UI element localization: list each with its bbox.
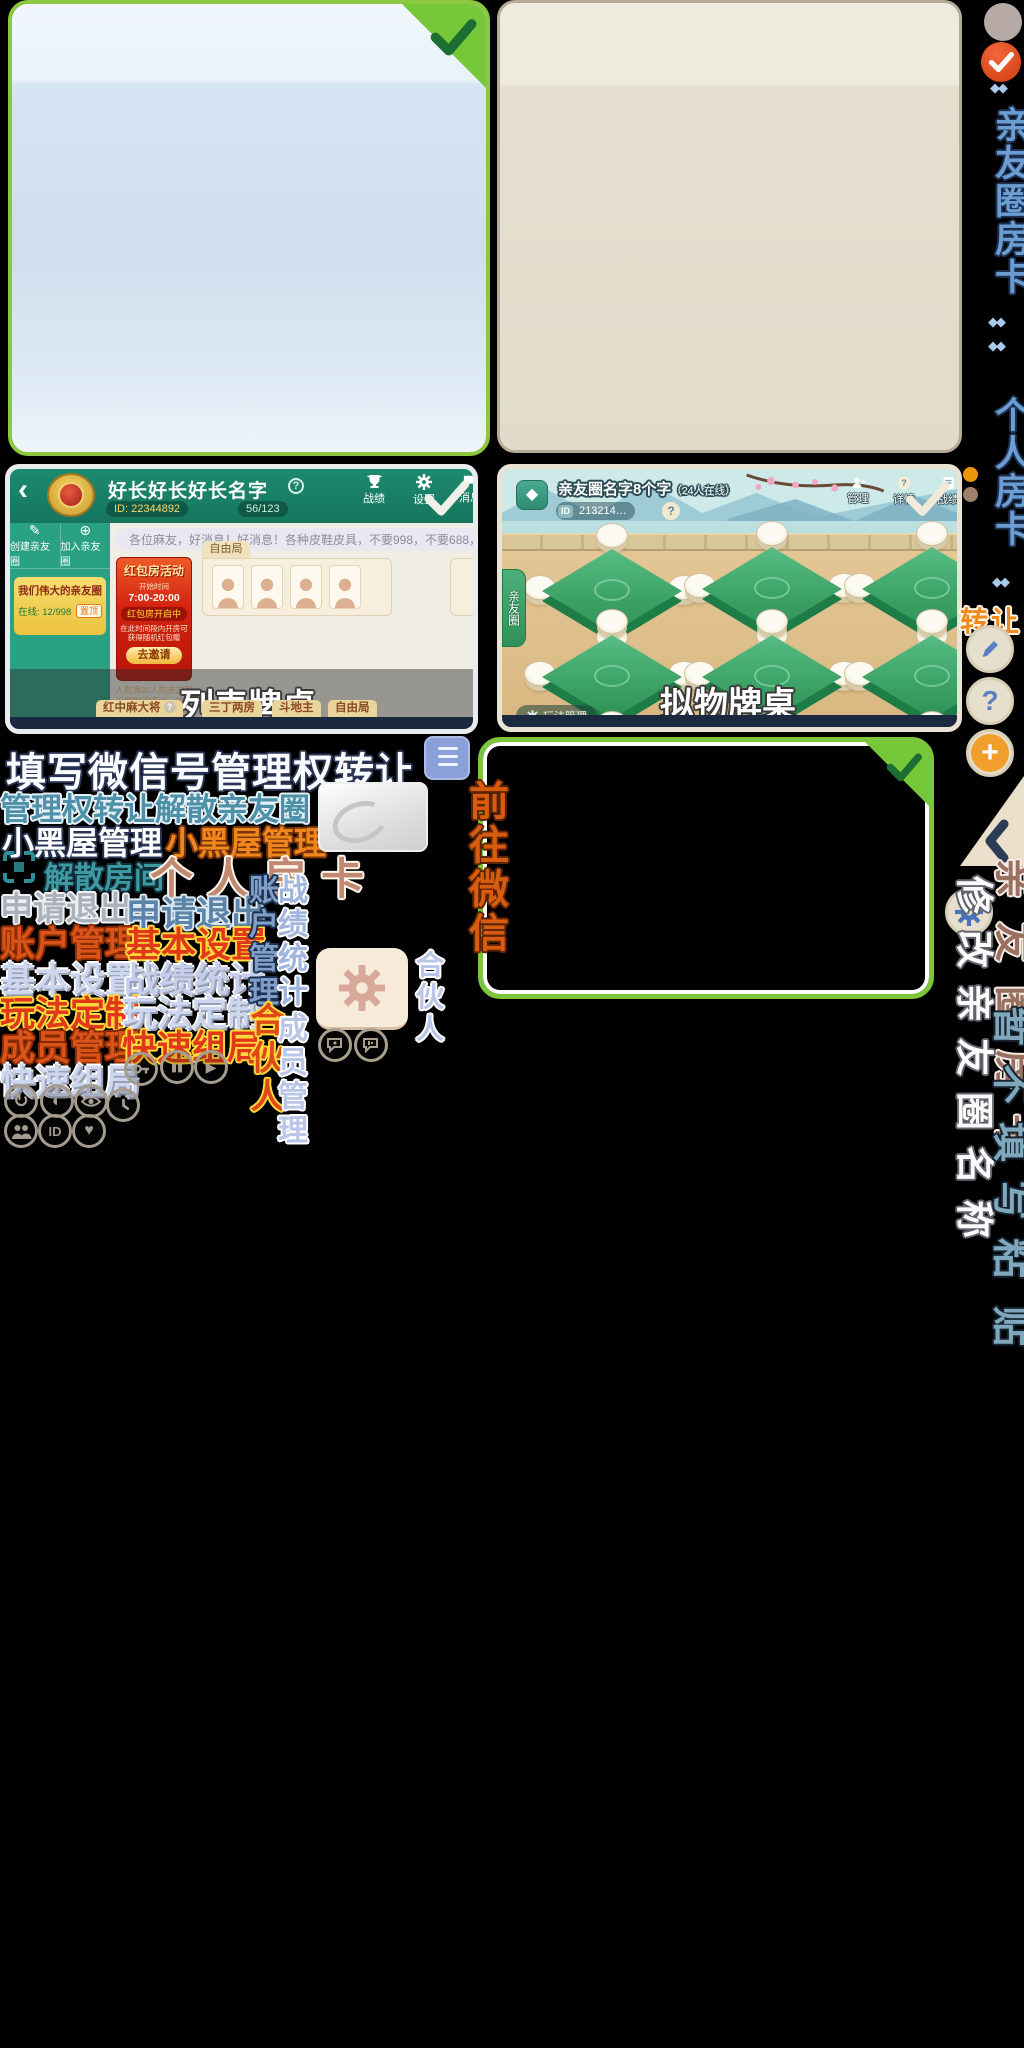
rail-label-paste-tail: 贴 <box>986 1306 1024 1346</box>
circle-emblem-icon <box>46 473 96 517</box>
tab-help-icon: ? <box>164 701 176 713</box>
gamemode-tab-1[interactable]: 红中麻大将? <box>96 700 183 717</box>
pause-icon: ▮▮ <box>160 1050 194 1084</box>
play-icon: ▶ <box>194 1050 228 1084</box>
selected-check-icon <box>422 477 470 519</box>
diamond-marker-icon: ◆◆ <box>988 314 1004 330</box>
corner-fold-collapse[interactable] <box>960 776 1024 866</box>
stats-button[interactable]: 战绩 <box>352 474 396 506</box>
avatar-placeholder-circle <box>984 3 1022 41</box>
my-circle-card[interactable]: 我们伟大的亲友圈 在线: 12/998 置顶 <box>14 577 106 635</box>
create-circle-button[interactable]: ✎ 创建亲友圈 <box>10 523 61 568</box>
rail-label-circle-room-card: 亲友圈房卡 <box>984 106 1024 296</box>
bottom-bar <box>10 717 473 729</box>
label-partner-blue-vertical: 合伙人 <box>408 950 448 1046</box>
card-frame-selected[interactable] <box>478 737 934 999</box>
plus-icon: + <box>971 734 1009 772</box>
heart-icon: ♥ <box>72 1114 106 1148</box>
selected-check-icon <box>904 479 950 519</box>
back-button[interactable]: ◆ <box>516 480 548 510</box>
rail-label-personal-room-card: 个人房卡 <box>984 396 1024 548</box>
eye-icon <box>74 1084 108 1118</box>
yinyang-icon: ◐ <box>40 1084 74 1118</box>
members-icon <box>4 1114 38 1148</box>
person-icon <box>851 476 866 489</box>
selected-check-icon <box>864 741 930 807</box>
next-table-card-partial <box>450 558 478 616</box>
circle-id-pill: ID 213214… <box>556 502 635 520</box>
seat-avatar-placeholder <box>329 565 361 609</box>
gear-icon <box>339 965 385 1011</box>
chat-voice-icon <box>354 1028 388 1062</box>
blank-silver-button <box>318 782 428 852</box>
join-circle-button[interactable]: ⊕ 加入亲友圈 <box>61 523 111 568</box>
check-icon <box>988 51 1014 73</box>
promo-desc: 在此时间段内开房可获得随机红包赠 <box>120 624 188 643</box>
edit-button[interactable] <box>966 625 1014 673</box>
circle-side-tab[interactable]: 亲友圈 <box>502 569 526 647</box>
bottom-bar <box>502 715 957 727</box>
back-diamond-icon: ◆ <box>526 486 538 503</box>
redo-arrow-icon: ↻ <box>4 1084 38 1118</box>
seat-avatar-placeholder <box>290 565 322 609</box>
member-count-pill: 56/123 <box>238 501 288 517</box>
corner-brackets-icon <box>2 851 36 883</box>
screenshot-list-table[interactable]: 各位麻友，好消息！好消息！各种皮鞋皮具，不要998，不要688，只要98元，只…… <box>5 464 478 734</box>
redpacket-promo-card: 红包房活动 开始时间 7:00-20:00 红包房开启中 在此时间段内开房可获得… <box>116 557 192 681</box>
diamond-marker-icon: ◆◆ <box>988 338 1004 354</box>
screenshot-skeuo-table[interactable]: ◆ 亲友圈名字8个字（24人在线） ID 213214… ? 管理 ? 详情 战… <box>497 464 962 732</box>
card-skeuo-style[interactable] <box>497 0 962 453</box>
gear-card-icon <box>316 948 408 1030</box>
help-button[interactable]: ? <box>966 677 1014 725</box>
mahjong-table[interactable] <box>862 635 962 719</box>
pin-badge[interactable]: 置顶 <box>76 604 102 618</box>
rail-label-no-fill-paste: 暂不填写粘 <box>986 1006 1024 1296</box>
circle-title: 好长好长好长名字 <box>108 476 268 503</box>
promo-title: 红包房活动 <box>120 562 188 579</box>
add-button[interactable]: + <box>966 729 1014 777</box>
gamemode-tab-4[interactable]: 自由局 <box>328 700 377 717</box>
pen-icon <box>978 637 1002 661</box>
back-button[interactable]: ‹ <box>18 473 28 507</box>
orange-dot-indicator <box>963 467 978 482</box>
trophy-icon <box>366 474 383 489</box>
plus-circle-icon: ⊕ <box>79 523 91 538</box>
circle-id-pill: ID: 22344892 <box>106 501 188 517</box>
diamond-marker-icon: ◆◆ <box>992 574 1008 590</box>
gamemode-tab-3[interactable]: 斗地主 <box>272 700 321 717</box>
promo-time: 7:00-20:00 <box>120 592 188 604</box>
promo-time-label: 开始时间 <box>120 581 188 592</box>
freeplay-tab[interactable]: 自由局 <box>202 541 250 558</box>
clock-icon <box>106 1088 140 1122</box>
help-icon[interactable]: ? <box>662 502 680 520</box>
label-stats-vertical: 战绩统计 <box>267 874 311 1010</box>
online-count: 在线: 12/998 <box>18 604 71 618</box>
selected-check-icon <box>401 3 487 89</box>
diamond-marker-icon: ◆◆ <box>990 80 1006 96</box>
announcement-text: 各位麻友，好消息！好消息！各种皮鞋皮具，不要998，不要688，只要98元，只… <box>129 531 478 548</box>
invite-button[interactable]: 去邀请 <box>126 647 182 664</box>
announcement-bar: 各位麻友，好消息！好消息！各种皮鞋皮具，不要998，不要688，只要98元，只… <box>116 528 478 551</box>
compose-icon: ✎ <box>29 523 41 538</box>
freeplay-table-card[interactable] <box>202 558 392 616</box>
help-icon[interactable]: ? <box>288 478 304 494</box>
chat-bubble-icon <box>318 1028 352 1062</box>
list-header: ‹ 好长好长好长名字 ? ID: 22344892 56/123 战绩 设置 <box>10 469 473 523</box>
promo-status: 红包房开启中 <box>121 607 187 621</box>
seat-avatar-placeholder <box>251 565 283 609</box>
gamemode-tab-2[interactable]: 三丁两房 <box>202 700 262 717</box>
label-goto-wechat-vertical: 前往微信 <box>456 780 514 956</box>
circle-title: 亲友圈名字8个字（24人在线） <box>558 478 736 499</box>
label-member-mgmt-vertical: 成员管理 <box>267 1012 311 1148</box>
list-lines-icon <box>424 736 470 780</box>
brown-dot-indicator <box>963 487 978 502</box>
seat-avatar-placeholder <box>212 565 244 609</box>
manage-button[interactable]: 管理 <box>838 476 878 506</box>
sprite-sheet-stage: 各位麻友，好消息！好消息！各种皮鞋皮具，不要998，不要688，只要98元，只…… <box>0 0 1024 2048</box>
confirm-check-button[interactable] <box>981 42 1021 82</box>
circle-name: 我们伟大的亲友圈 <box>18 583 102 598</box>
key-icon <box>124 1052 158 1086</box>
card-list-style-selected[interactable] <box>8 0 490 456</box>
id-badge-icon: ID <box>38 1114 72 1148</box>
